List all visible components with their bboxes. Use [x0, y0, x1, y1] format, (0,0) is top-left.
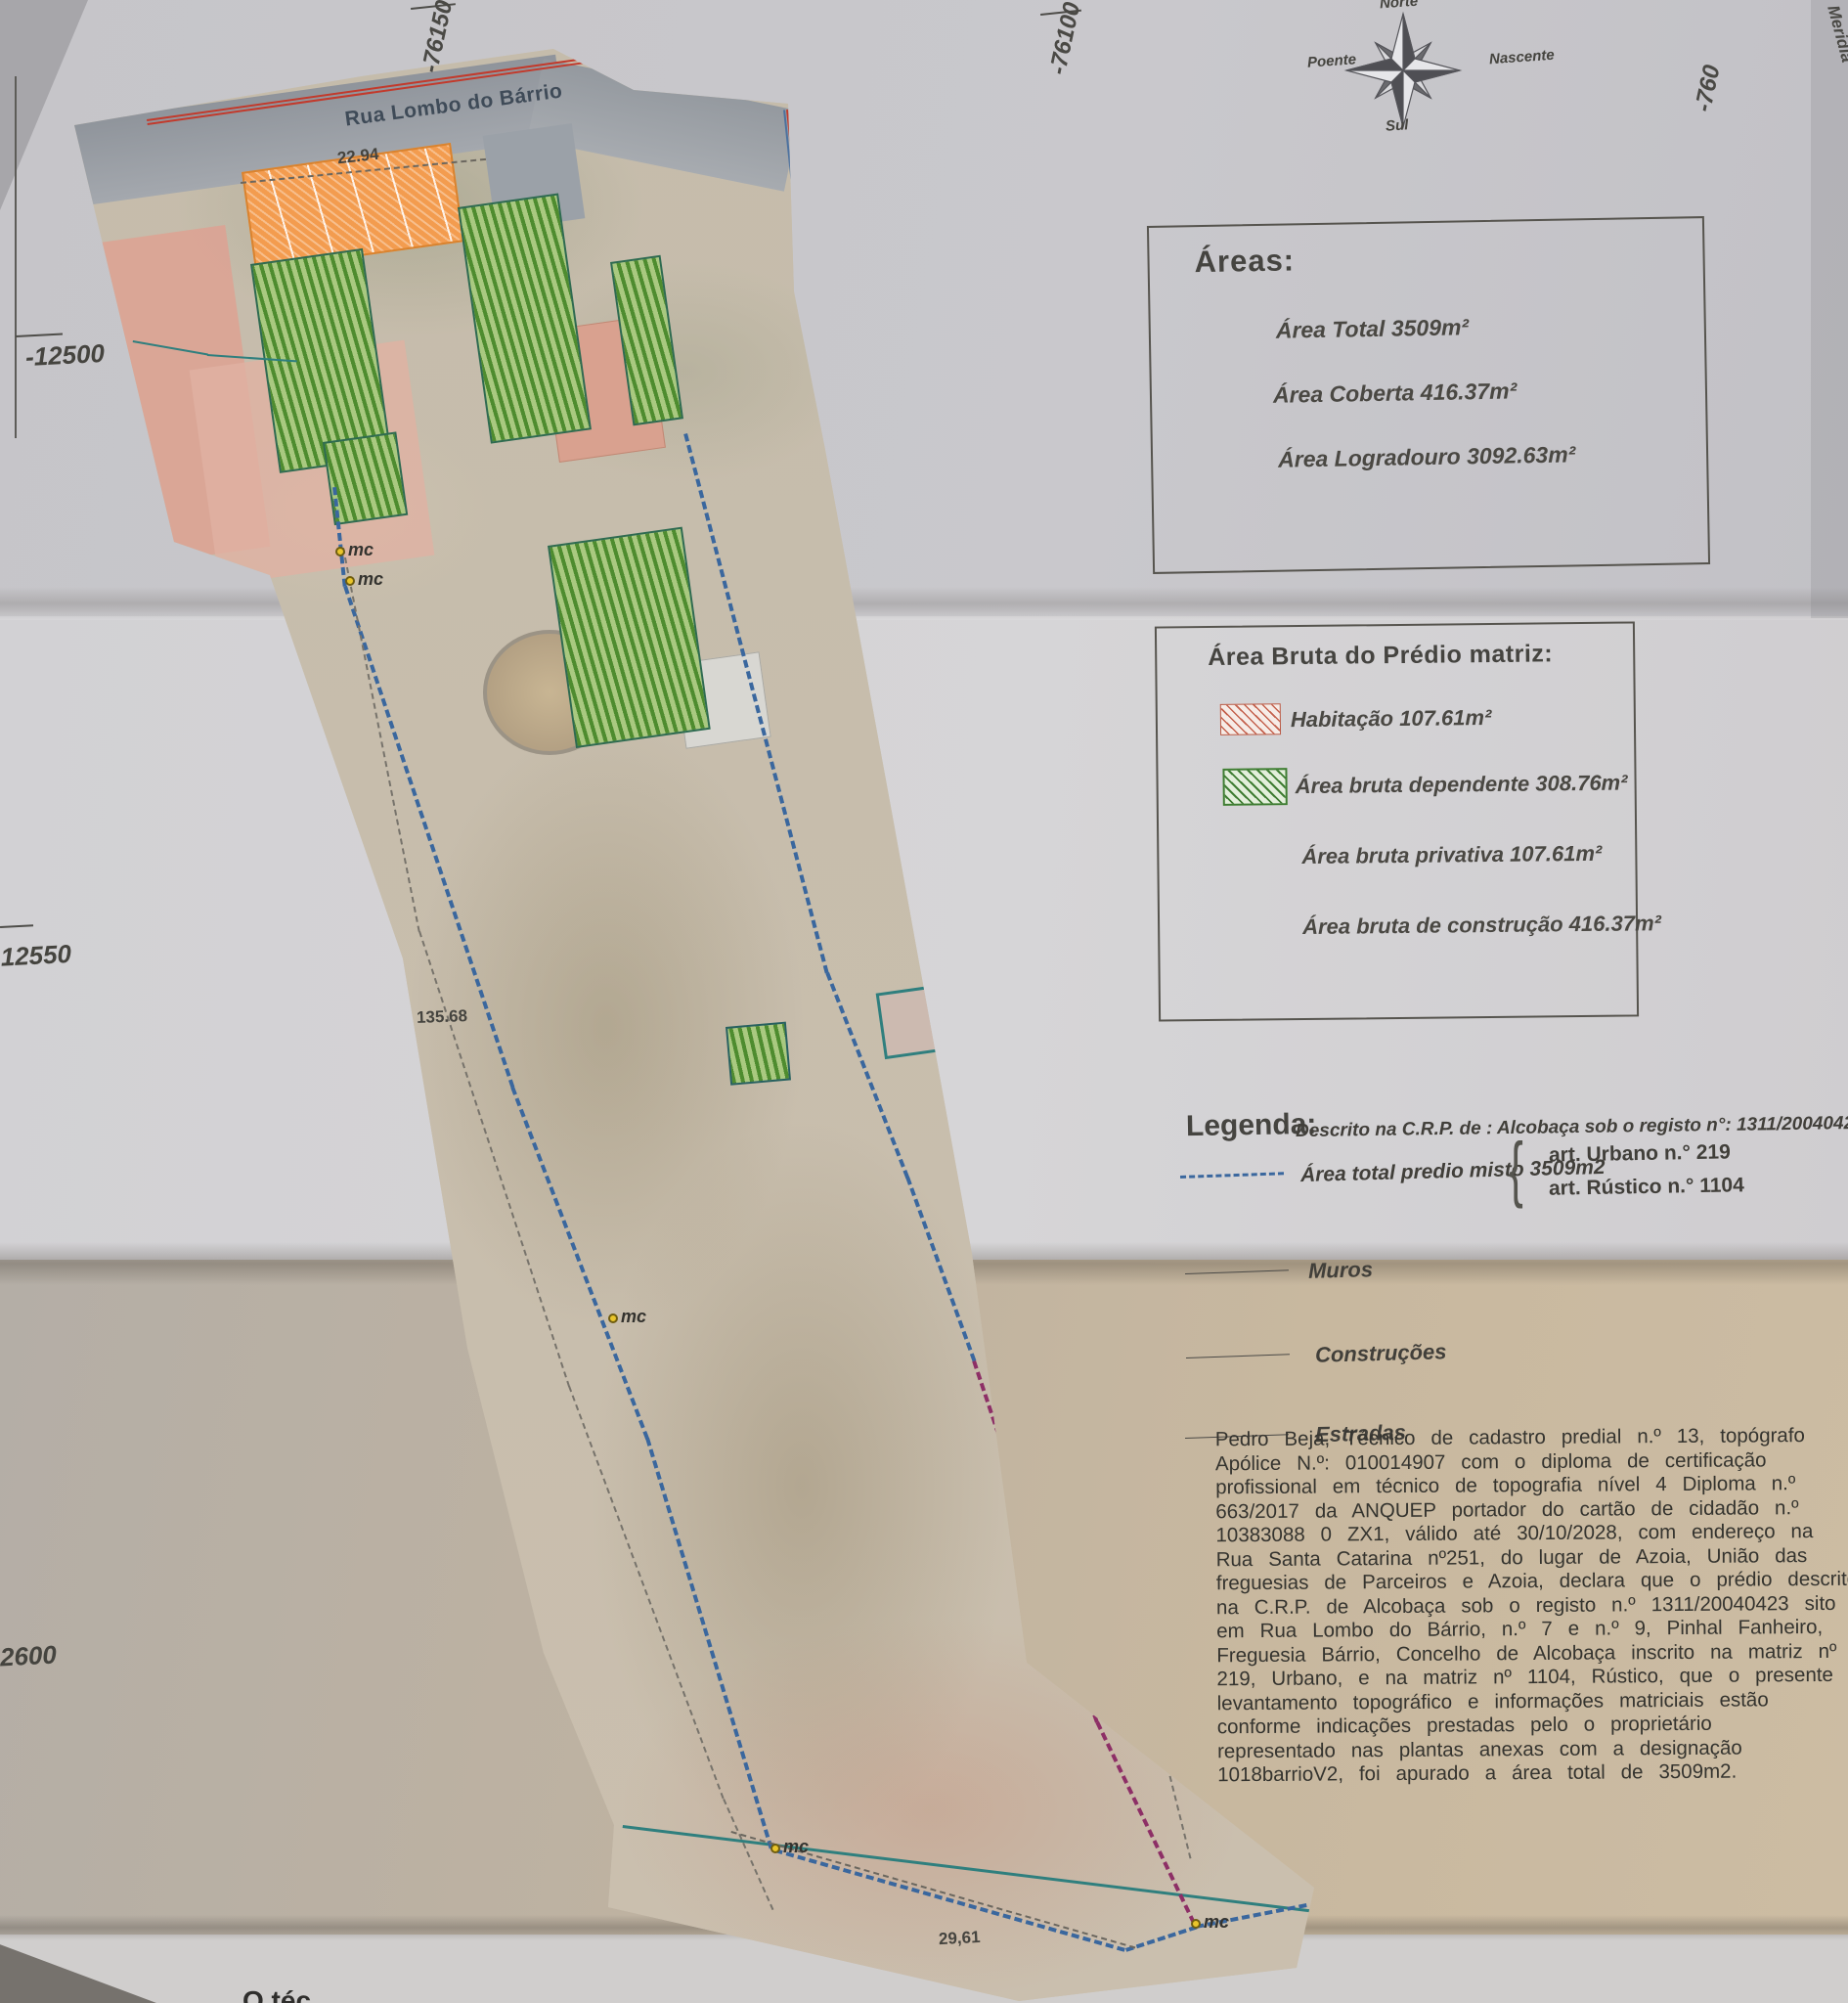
- marker-dot-icon: [1191, 1919, 1201, 1929]
- declaration-line: profissional em técnico de topografia ní…: [1215, 1472, 1848, 1500]
- habitacao-label: Habitação 107.61m²: [1291, 705, 1492, 733]
- declaration-line: 10383088 0 ZX1, válido até 30/10/2028, c…: [1215, 1520, 1848, 1548]
- areas-box: Áreas: Área Total 3509m² Área Coberta 41…: [1147, 216, 1710, 574]
- boundary-blue-bottom-2: [1125, 1926, 1198, 1952]
- measurement-bottom: 29,61: [939, 1928, 982, 1949]
- areas-item-logradouro: Área Logradouro 3092.63m²: [1278, 441, 1576, 472]
- dependente-hatch-swatch: [1222, 768, 1287, 806]
- declaration-line: freguesias de Parceiros e Azoia, declara…: [1216, 1568, 1848, 1596]
- paper-edge-right-shade: [1811, 0, 1848, 618]
- declaration-text-block: Pedro Beja, Técnico de cadastro predial …: [1215, 1424, 1848, 1788]
- areas-box-title: Áreas:: [1194, 243, 1295, 280]
- declaration-line: levantamento topográfico e informações m…: [1217, 1687, 1848, 1715]
- marker-dot-icon: [608, 1313, 618, 1323]
- declaration-line: 1018barrioV2, foi apurado a área total d…: [1217, 1759, 1848, 1788]
- compass-rose: Norte Poente Nascente Sul: [1325, 0, 1481, 149]
- area-bruta-box: Área Bruta do Prédio matriz: Habitação 1…: [1155, 621, 1639, 1021]
- internal-dashed-left-4: [723, 1799, 773, 1910]
- areas-item-total: Área Total 3509m²: [1276, 314, 1470, 343]
- areas-item-coberta: Área Coberta 416.37m²: [1273, 378, 1518, 408]
- measurement-left: 135.68: [417, 1006, 468, 1028]
- area-bruta-title: Área Bruta do Prédio matriz:: [1208, 640, 1553, 672]
- dependente-green-area-3: [458, 194, 592, 444]
- marker-dot-icon: [335, 547, 345, 556]
- grid-label-y12500: -12500: [24, 338, 105, 373]
- habitacao-hatch-swatch: [1220, 703, 1281, 735]
- internal-dashed-left-3: [568, 1386, 724, 1799]
- marker-dot-icon: [770, 1844, 780, 1853]
- compass-south-label: Sul: [1385, 116, 1408, 135]
- photographed-survey-document: Rua Lombo do Bárrio 22.94 135.68 145.37 …: [0, 0, 1848, 2003]
- declaration-line: 219, Urbano, e na matriz nº 1104, Rústic…: [1216, 1664, 1848, 1692]
- grid-label-y12550: -12550: [0, 939, 72, 973]
- compass-west-label: Poente: [1306, 51, 1356, 70]
- dependente-label: Área bruta dependente 308.76m²: [1295, 771, 1627, 800]
- boundary-blue-left-3: [510, 1087, 649, 1440]
- grid-label-y2600: 2600: [0, 1640, 58, 1673]
- bottom-cut-text: O téc: [242, 1985, 311, 2003]
- map-neatline-left: [15, 76, 17, 438]
- declaration-line: em Rua Lombo do Bárrio, n.º 7 e n.º 9, P…: [1216, 1616, 1848, 1644]
- privativa-label: Área bruta privativa 107.61m²: [1301, 841, 1602, 869]
- declaration-line: Pedro Beja, Técnico de cadastro predial …: [1215, 1424, 1848, 1452]
- dependente-green-area-6: [726, 1022, 791, 1086]
- marker-dot-icon: [345, 576, 355, 586]
- construcao-label: Área bruta de construção 416.37m²: [1302, 911, 1661, 940]
- dependente-green-area-5: [548, 527, 711, 748]
